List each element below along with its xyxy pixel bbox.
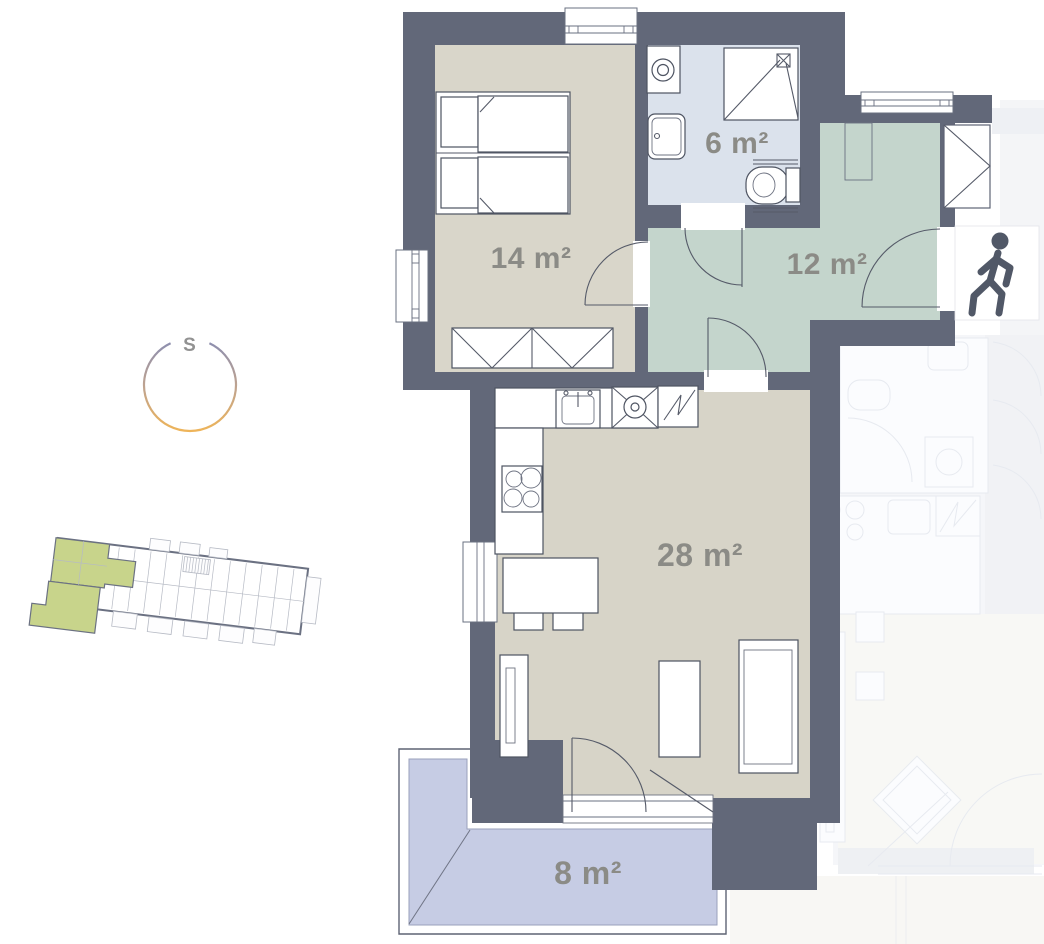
compass-south-label: S [183,335,197,356]
closet-icon [944,125,990,208]
bedroom-top-window [565,8,637,44]
washing-machine-icon [647,46,680,93]
fridge-icon [658,386,698,427]
floorplan-canvas: 14 m² 6 m² 12 m² 28 m² 8 m² S [0,0,1044,944]
bathroom-area-label: 6 m² [705,127,769,160]
sofa-icon [739,640,798,773]
hallway-area-label: 12 m² [787,248,868,281]
living-area-label: 28 m² [657,537,743,573]
stove-icon [612,387,658,428]
cooktop-icon [502,466,542,512]
neighbor-toilet-icon [848,380,890,410]
bed-icon [436,92,570,214]
shower-icon [724,48,798,120]
terrace-area-label: 8 m² [554,855,622,891]
site-plan-stairs [183,557,211,575]
bedroom-left-window [396,250,428,322]
bath-sink-icon [648,114,685,159]
living-left-window [463,542,497,622]
bedroom-area-label: 14 m² [491,242,572,275]
sideboard-icon [500,655,528,757]
hallway-window [861,92,953,113]
coffee-table-icon [659,661,700,757]
neighbor-washing-machine-icon [925,437,973,487]
kitchen-sink-icon [556,390,600,428]
wardrobe-icon [452,328,613,368]
neighbor-sink-icon [928,342,968,370]
